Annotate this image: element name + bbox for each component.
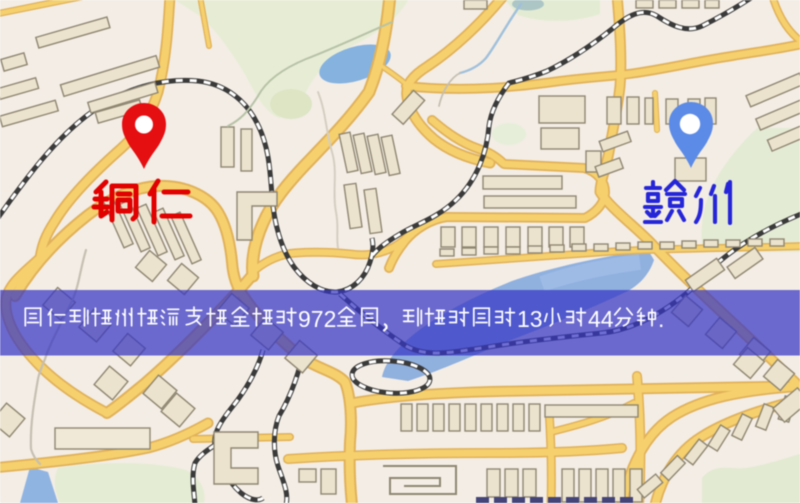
- svg-text:13: 13: [517, 306, 543, 332]
- svg-text:44: 44: [588, 306, 614, 332]
- svg-text:.: .: [658, 306, 664, 332]
- svg-text:972: 972: [298, 306, 336, 332]
